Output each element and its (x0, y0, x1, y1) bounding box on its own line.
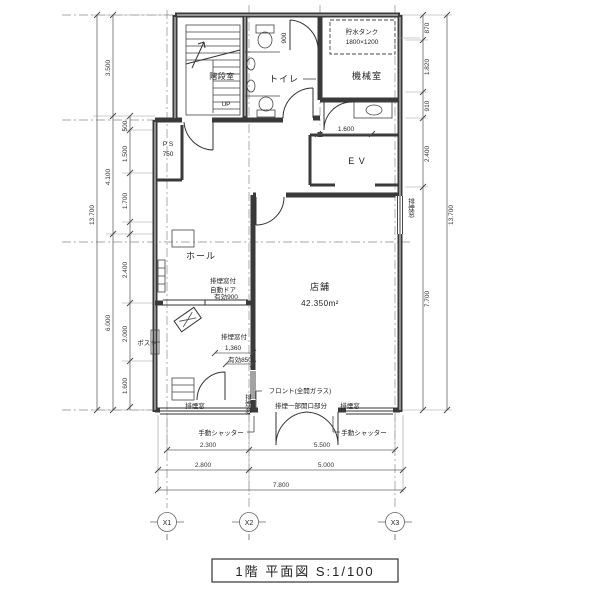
toilet-label: トイレ (269, 74, 299, 84)
auto-door: 排煙窓付 自動ドア 有効900 (155, 276, 253, 305)
ps-label: P S (163, 141, 174, 148)
toilet-door-arc (283, 88, 313, 118)
dim-left-minor-1: 1.500 (122, 145, 129, 162)
grid-label-x1: X1 (163, 520, 172, 527)
water-tank-label: 貯水タンク (346, 27, 379, 36)
shutter-right-label: 手動シャッター (341, 428, 387, 437)
vestibule-window-note-3: 有効850 (228, 355, 252, 364)
dim-right-minor-4: 7.700 (424, 290, 431, 307)
shop-area-label: 42.350m² (301, 299, 339, 308)
dim-left-minor-3: 2.400 (122, 261, 129, 278)
machine-room: 貯水タンク 1800×1200 機械室 (324, 20, 420, 130)
floor-plan-page: 13.700 3.500 4.100 6.000 500 1.500 1.700… (0, 0, 600, 600)
vestibule-window-note-2: 1,360 (225, 345, 242, 352)
post-label: ポスト (137, 339, 157, 347)
dim-left-minor-0: 500 (122, 120, 129, 131)
dimension-ticks (94, 12, 450, 493)
bottom-dimensions: 2.300 5.500 2.800 5.000 7.800 (195, 442, 335, 489)
dim-bottom-r2-1: 5.000 (318, 462, 335, 469)
dim-left-major-1: 4.100 (105, 168, 112, 185)
dim-bottom-r1-1: 5.500 (314, 442, 331, 449)
dim-right-minor-0: 870 (424, 22, 431, 33)
right-dimensions: 870 1.820 910 2.400 7.700 13.700 (424, 22, 455, 307)
smoke-window-left-label: 排煙窓 (185, 401, 205, 410)
left-dimensions: 13.700 3.500 4.100 6.000 500 1.500 1.700… (89, 59, 129, 394)
water-tank-size: 1800×1200 (346, 39, 379, 46)
stairwell: 階段室 UP (184, 25, 240, 150)
dim-right-minor-1: 1.820 (424, 58, 431, 75)
elevator-shaft: E V 1.600 (315, 126, 375, 166)
drawing-title: 1階 平面図 S:1/100 (235, 564, 374, 579)
toilet-fixture-dim: 900 (281, 32, 288, 43)
elevator-label: E V (348, 156, 366, 166)
dim-right-minor-2: 910 (424, 100, 431, 111)
vestibule-window-note-1: 排煙窓付 (221, 332, 248, 341)
stairwell-label: 階段室 (209, 71, 235, 81)
east-smoke-window-label: 排煙窓 (407, 197, 415, 218)
dim-bottom-total: 7.800 (273, 482, 290, 489)
dim-bottom-r2-0: 2.800 (195, 462, 212, 469)
hall: ホール (158, 197, 284, 332)
stair-door-arc (184, 120, 213, 150)
title-block: 1階 平面図 S:1/100 (212, 559, 398, 582)
smoke-opening-label: 排煙一部開口部分 (275, 401, 328, 410)
auto-door-note-2: 自動ドア (210, 285, 237, 294)
machine-room-label: 機械室 (352, 70, 382, 81)
elevator-dim: 1.600 (338, 126, 355, 133)
ps-shaft: P S 750 (163, 141, 174, 158)
dim-left-total: 13.700 (89, 205, 96, 225)
dimension-lines (94, 12, 450, 493)
grid-label-x2: X2 (245, 520, 254, 527)
water-tank-outline (330, 20, 395, 54)
entrance-door-left (276, 412, 307, 445)
dim-left-major-0: 3.500 (105, 59, 112, 76)
dim-right-total: 13.700 (448, 205, 455, 225)
auto-door-note-3: 有効900 (214, 292, 238, 301)
vestibule-door-arc (197, 372, 225, 400)
grid-markers: X1 X2 X3 (150, 513, 412, 541)
hall-label: ホール (186, 251, 216, 261)
auto-door-note-1: 排煙窓付 (210, 276, 237, 285)
storefront: フロント(全開ガラス) 排煙窓 排煙一部開口部分 排煙窓 手動シャッター 手動シ… (185, 386, 387, 445)
dim-left-minor-5: 1.600 (122, 377, 129, 394)
front-label: フロント(全開ガラス) (269, 386, 332, 395)
dim-left-major-2: 6.000 (105, 314, 112, 331)
ps-size: 750 (163, 151, 174, 158)
toilet-room: 900 トイレ (245, 20, 318, 118)
floor-plan-drawing: 13.700 3.500 4.100 6.000 500 1.500 1.700… (0, 0, 600, 600)
shutter-left-label: 手動シャッター (198, 428, 244, 437)
dim-right-minor-3: 2.400 (424, 145, 431, 162)
dim-left-minor-2: 1.700 (122, 192, 129, 209)
dim-bottom-r1-0: 2.300 (200, 442, 217, 449)
fire-extinguisher-marker (174, 307, 201, 331)
grid-label-x3: X3 (391, 520, 400, 527)
shop-label: 店舗 (310, 281, 330, 292)
hall-shop-door-arc (256, 197, 284, 225)
dim-left-minor-4: 2.000 (122, 325, 129, 342)
smoke-window-right-label: 排煙窓 (340, 401, 360, 410)
stair-up-label: UP (221, 101, 230, 108)
